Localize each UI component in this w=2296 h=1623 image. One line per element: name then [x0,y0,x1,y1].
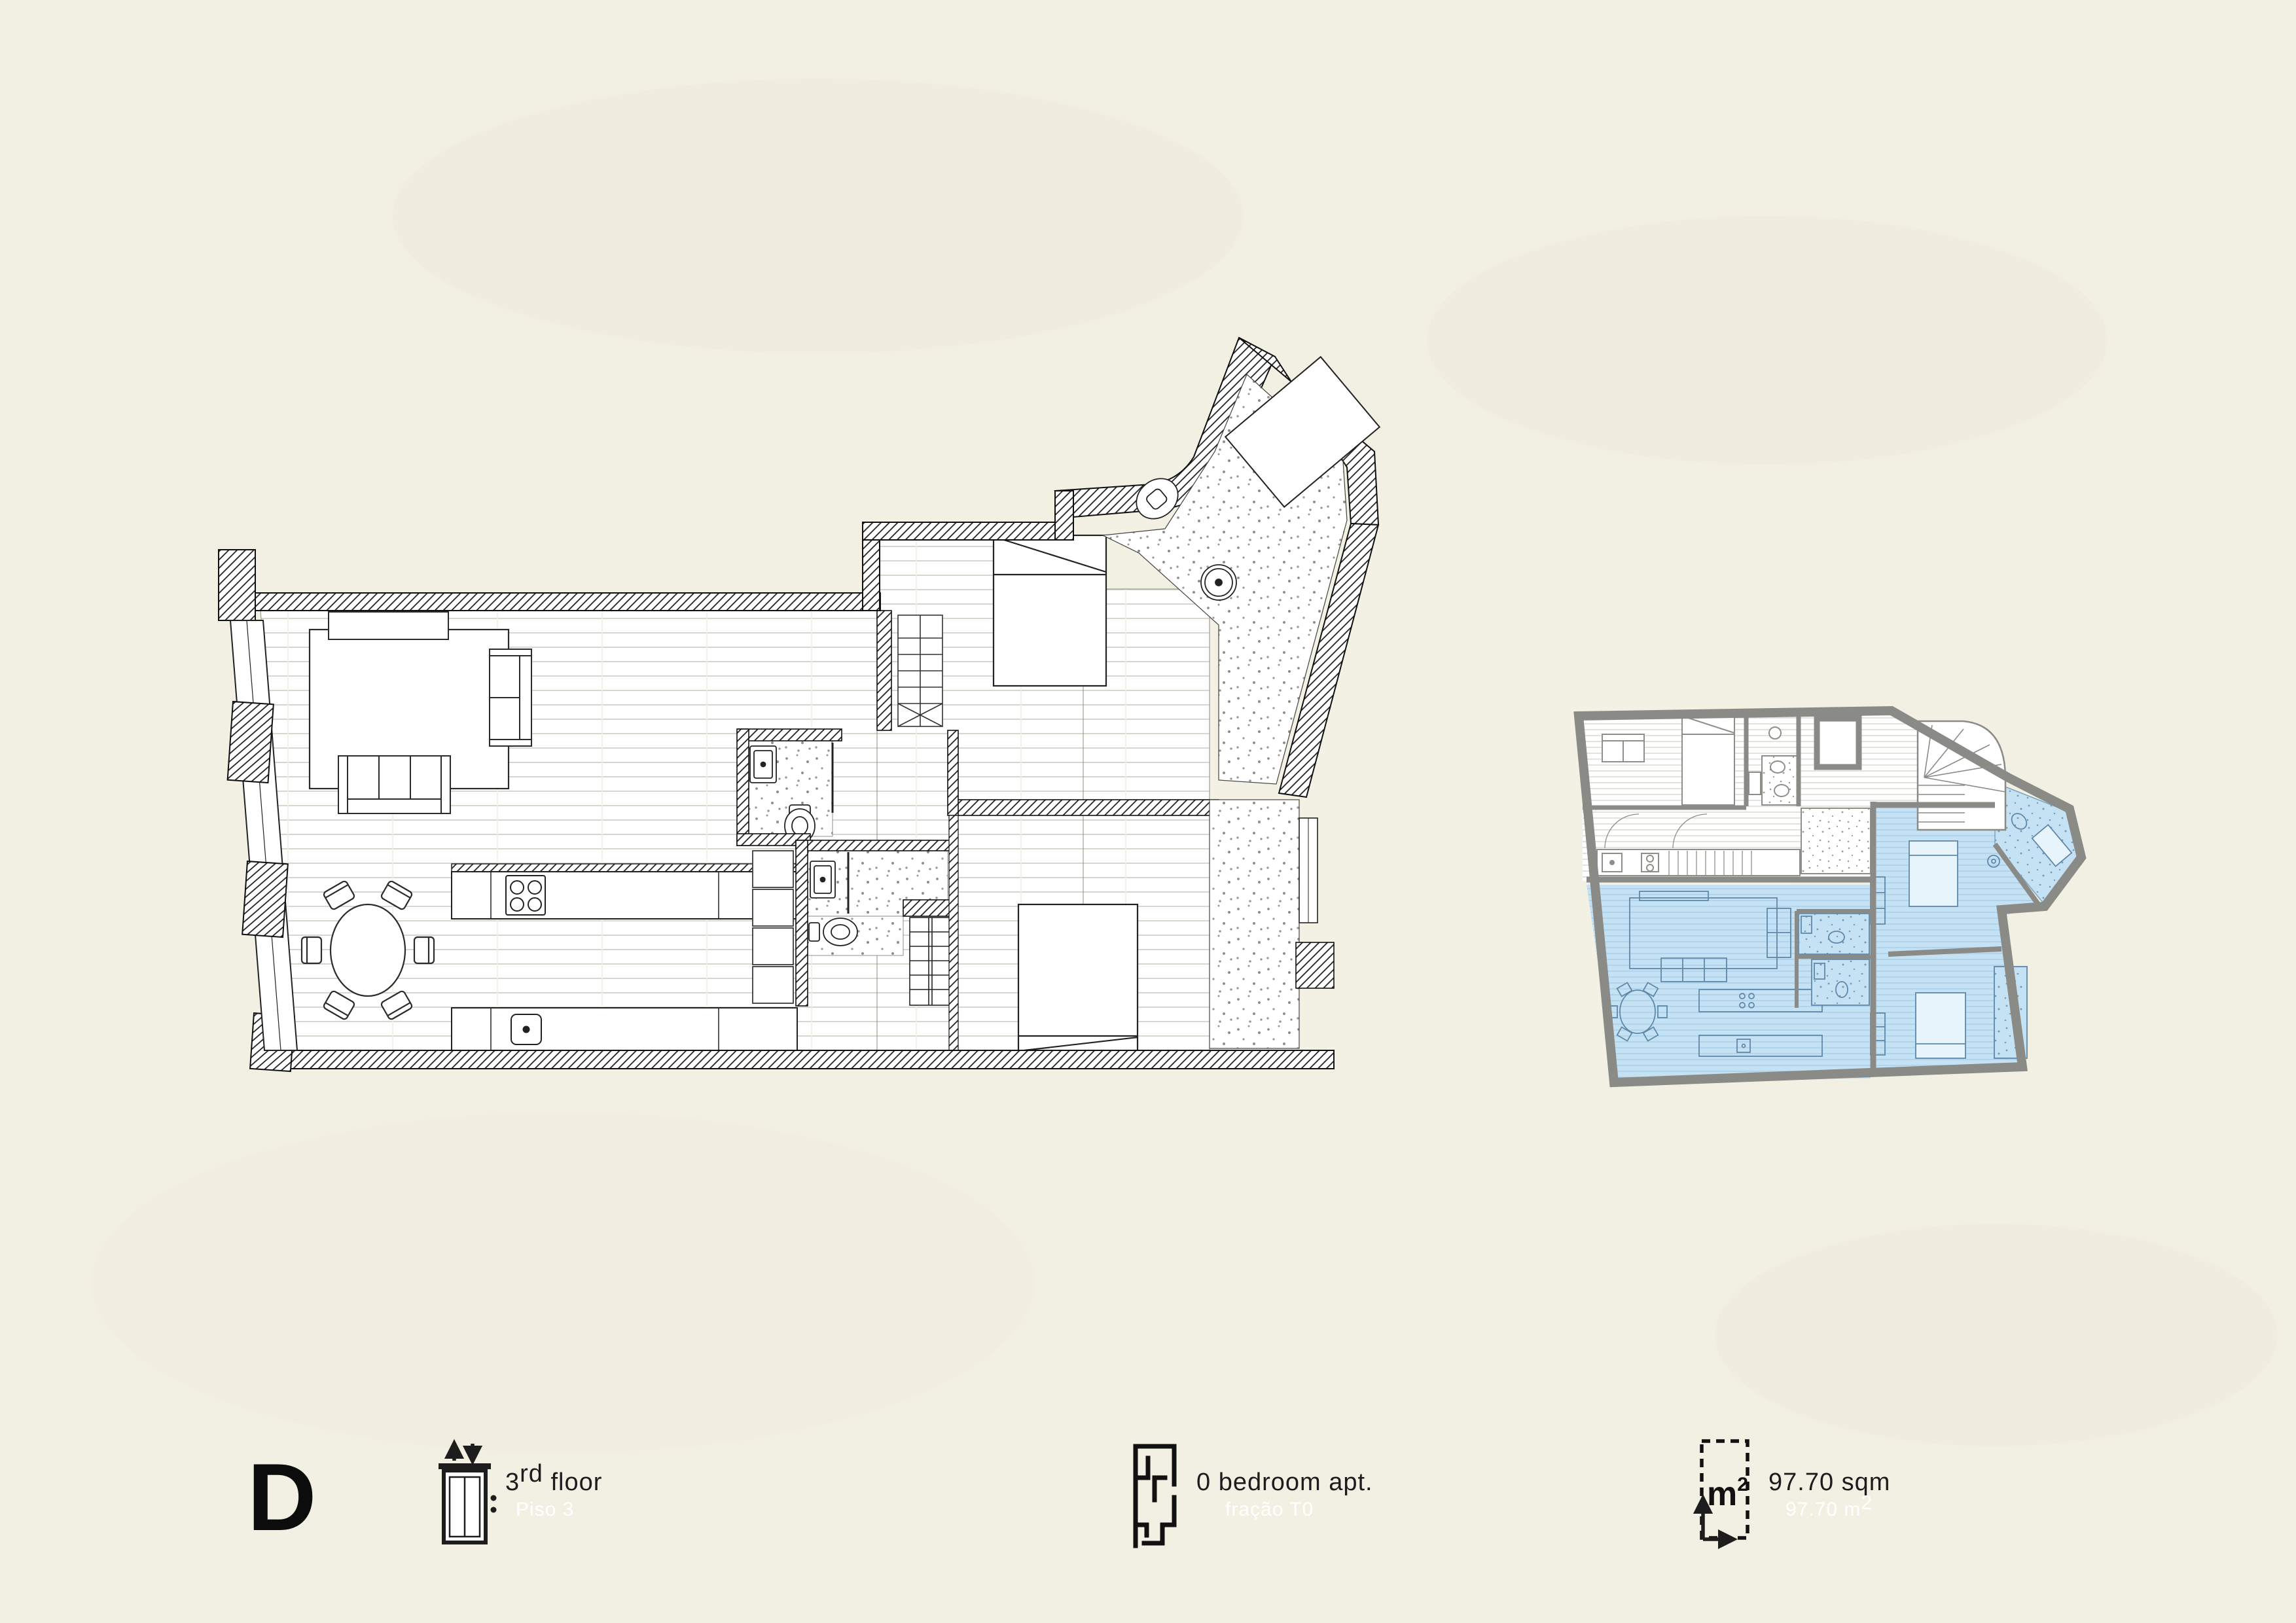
kitchen-counter-bottom [452,1008,797,1052]
wall-bottom [255,1050,1334,1069]
wall-top [242,593,880,611]
window-pier [242,861,288,937]
toilet-tank [809,923,819,941]
bed [994,535,1106,686]
key-bed-1 [1909,841,1958,906]
window-pier [228,702,274,783]
round-sink [1201,565,1236,600]
floor-plan-sheet: D 3rd floor Piso 3 0 bedroom apt. fração… [0,0,2296,1623]
unit-letter: D [247,1444,316,1550]
key-bed-2 [1916,993,1965,1058]
bathroom-1 [737,729,842,846]
plan-drawing: D 3rd floor Piso 3 0 bedroom apt. fração… [0,0,2296,1623]
hob [506,876,545,915]
loveseat [490,649,531,746]
floor-label-alt: Piso 3 [516,1499,574,1520]
bed [1018,904,1138,1052]
sofa [338,756,450,813]
living-room [310,612,531,813]
entry-hall [1801,808,1871,874]
type-label-alt: fração T0 [1225,1499,1314,1520]
stairs [910,918,950,1005]
closet [898,615,942,726]
kitchen-counter-top [452,872,797,919]
type-label: 0 bedroom apt. [1196,1469,1373,1496]
elevator-shaft [1817,719,1859,767]
chimney [219,550,255,620]
sideboard [329,612,448,639]
kitchen-sink [511,1014,541,1044]
table-top [331,904,405,996]
counter-back-edge [452,864,797,872]
